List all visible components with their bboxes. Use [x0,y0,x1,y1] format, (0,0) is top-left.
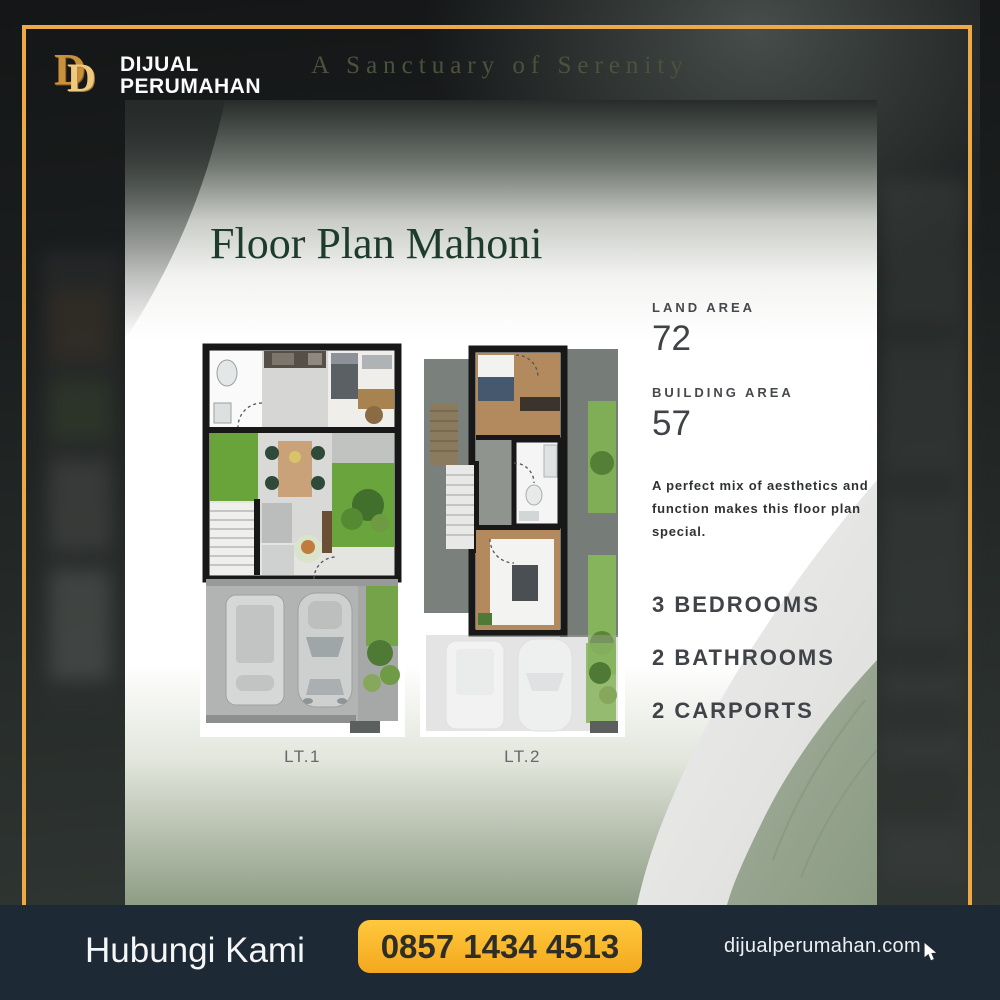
floorplan-lt2: LT.2 [420,343,625,767]
floorplan-lt1: LT.1 [200,343,405,767]
feature-carports: 2 CARPORTS [652,698,892,724]
card-title: Floor Plan Mahoni [210,218,542,269]
floorplan-lt2-image [420,343,625,737]
building-area-label: BUILDING AREA [652,385,882,400]
floor-label-lt2: LT.2 [420,747,625,767]
building-area-value: 57 [652,404,882,444]
contact-label: Hubungi Kami [85,931,305,971]
floor-label-lt1: LT.1 [200,747,405,767]
blurred-ghost-left [42,250,122,720]
footer-bar: Hubungi Kami 0857 1434 4513 dijualperuma… [0,905,1000,1000]
blurred-ghost-right [880,180,968,880]
feature-bathrooms: 2 BATHROOMS [652,645,892,671]
tagline: A Sanctuary of Serenity [0,52,1000,80]
specs-panel: LAND AREA 72 BUILDING AREA 57 A perfect … [652,300,882,543]
feature-bedrooms: 3 BEDROOMS [652,592,892,618]
floorplan-card: Floor Plan Mahoni [125,100,877,905]
website-link[interactable]: dijualperumahan.com [724,935,939,961]
floorplan-lt1-image [200,343,405,737]
feature-list: 3 BEDROOMS 2 BATHROOMS 2 CARPORTS [652,592,892,751]
post-canvas: D D DIJUAL PERUMAHAN A Sanctuary of Sere… [0,0,1000,1000]
website-text: dijualperumahan.com [724,935,921,958]
header: D D DIJUAL PERUMAHAN A Sanctuary of Sere… [0,0,1000,110]
cursor-arrow-icon [923,943,939,961]
land-area-value: 72 [652,319,882,359]
land-area-label: LAND AREA [652,300,882,315]
description-text: A perfect mix of aesthetics and function… [652,474,877,543]
phone-button[interactable]: 0857 1434 4513 [358,920,642,973]
